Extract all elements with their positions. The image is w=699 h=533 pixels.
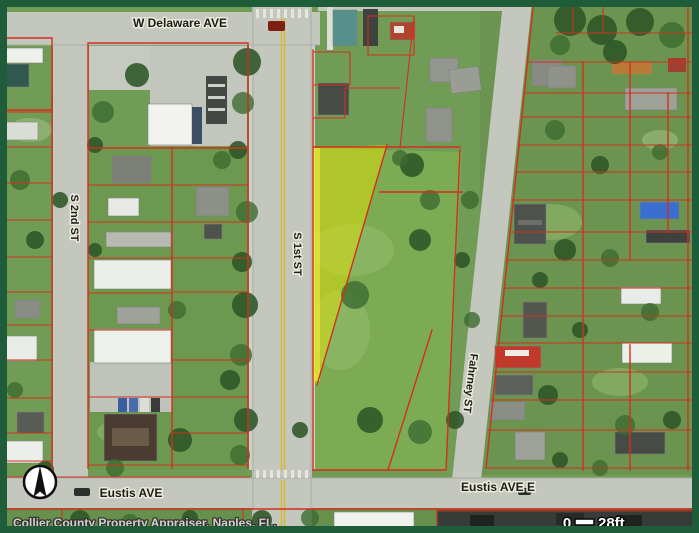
north-arrow-icon — [24, 466, 56, 498]
street-label-s-1st-st: S 1st ST — [291, 232, 303, 276]
street-label-s-2nd-st: S 2nd ST — [68, 194, 80, 241]
street-label-w-delaware: W Delaware AVE — [133, 16, 227, 30]
street-label-eustis-ave-e: Eustis AVE E — [461, 480, 535, 494]
aerial-map-view[interactable]: W Delaware AVE S 2nd ST S 1st ST Fahrney… — [0, 0, 699, 533]
scale-bar-segment — [575, 519, 594, 525]
road-s-2nd-st — [53, 12, 88, 508]
street-label-eustis-ave: Eustis AVE — [100, 486, 163, 500]
